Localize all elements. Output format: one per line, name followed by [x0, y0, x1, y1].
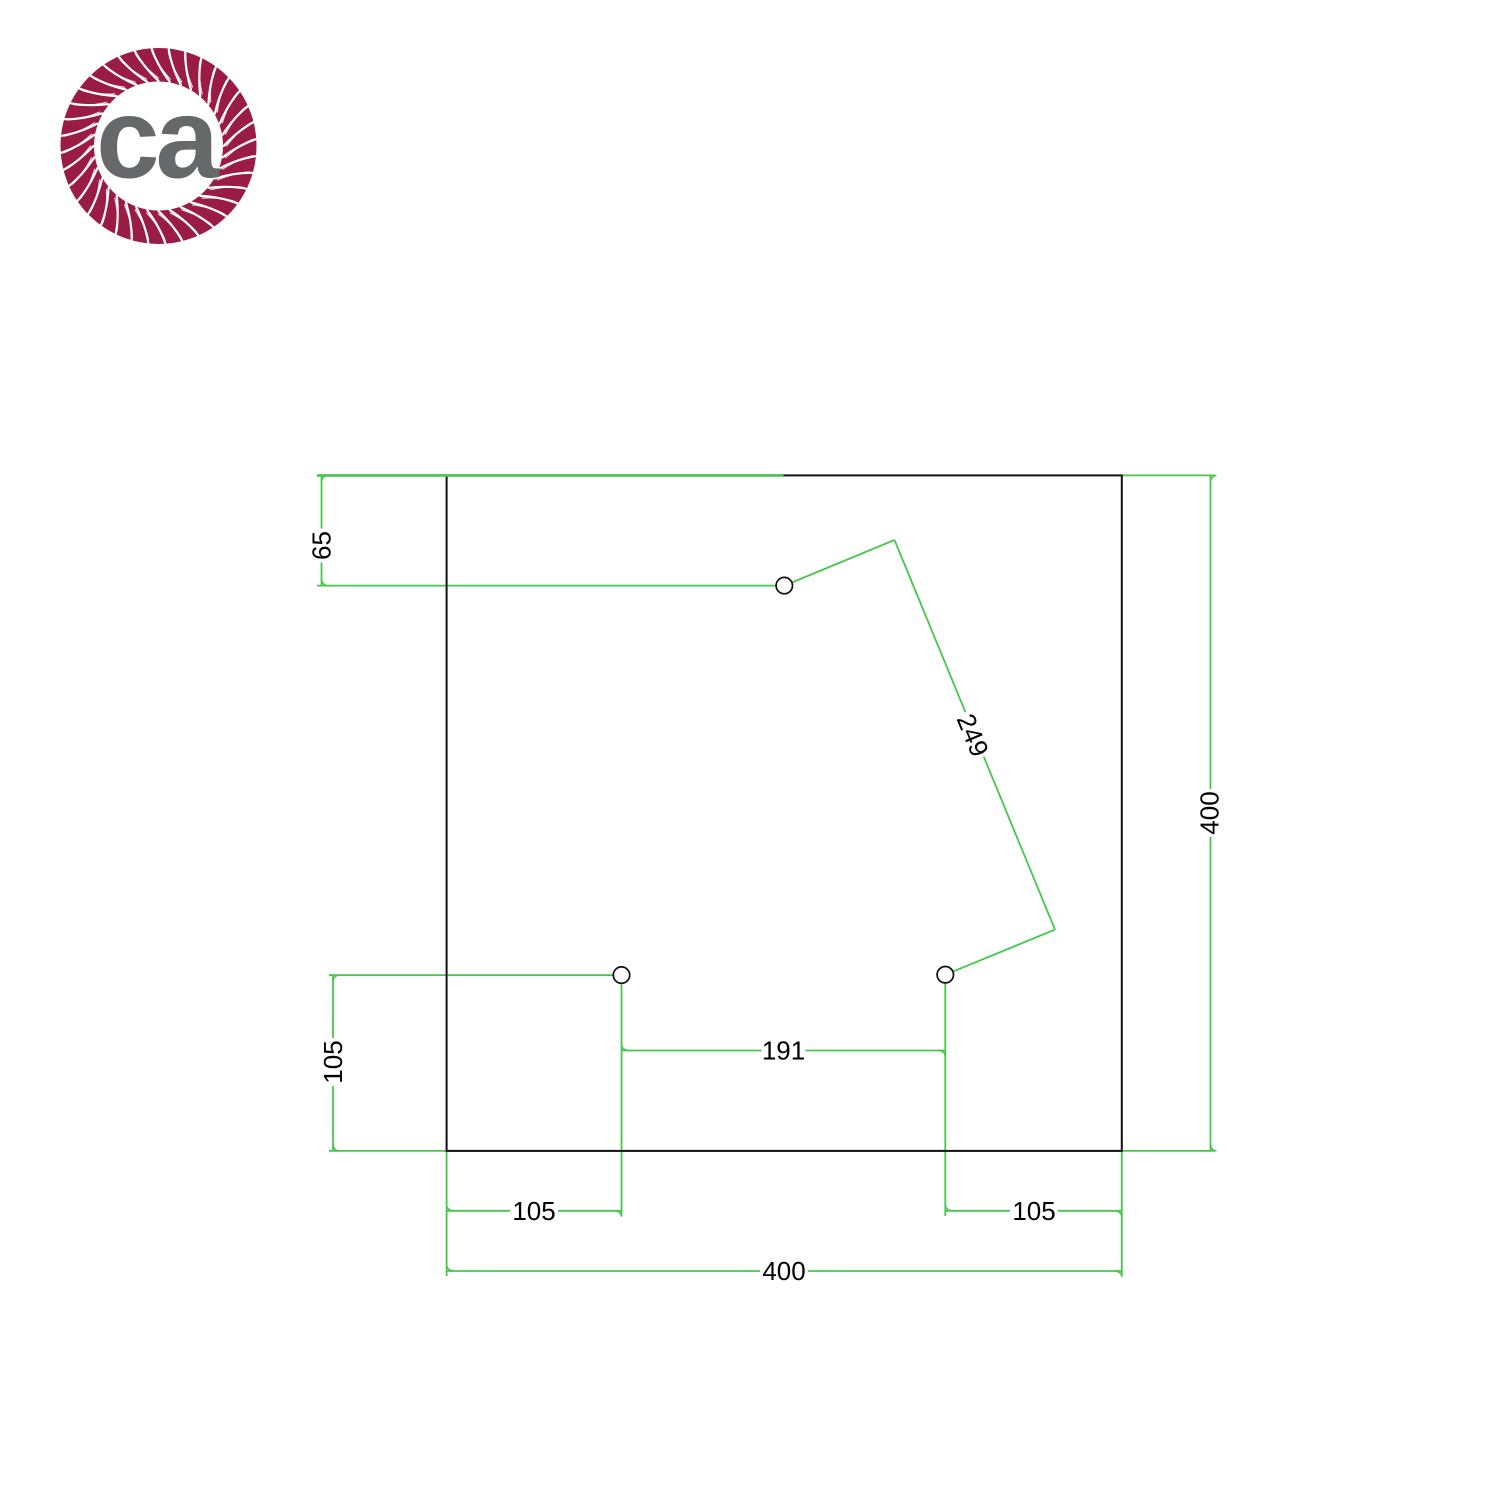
svg-text:105: 105: [1012, 1196, 1055, 1226]
svg-text:105: 105: [318, 1040, 348, 1083]
svg-text:191: 191: [762, 1036, 805, 1066]
svg-text:400: 400: [762, 1256, 805, 1286]
svg-text:400: 400: [1195, 791, 1225, 834]
svg-text:ca: ca: [96, 76, 220, 203]
svg-text:65: 65: [307, 531, 337, 560]
svg-text:105: 105: [512, 1196, 555, 1226]
